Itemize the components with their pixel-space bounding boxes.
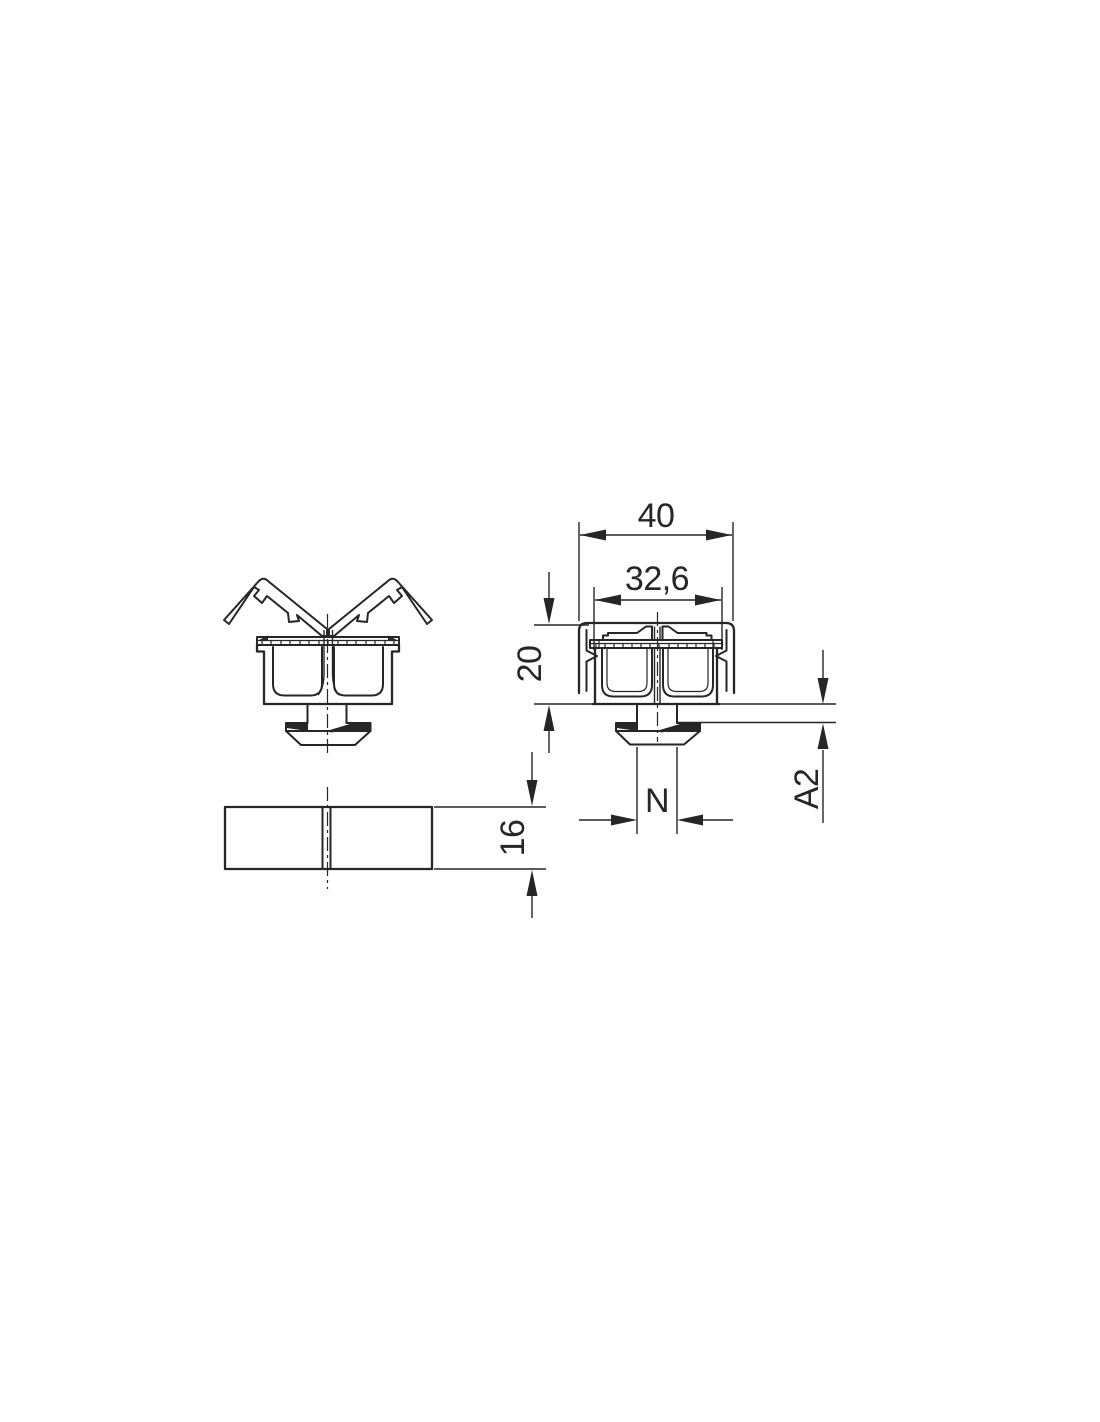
arrowhead-left (611, 815, 637, 826)
foot-taper (286, 731, 371, 745)
cavity-left (273, 647, 322, 696)
dimensions: 40 32,6 20 A2 (434, 497, 836, 918)
side-view (579, 612, 734, 745)
dim-inner-width-32-6: 32,6 (594, 560, 722, 650)
foot-wedge-left (287, 723, 309, 731)
dim-plate-thickness-16: 16 (434, 752, 546, 918)
dim-label-plate-thickness: 16 (494, 820, 532, 857)
dim-flange-height-a2: A2 (677, 650, 836, 823)
arrowhead-bottom (818, 724, 829, 750)
arrowhead-bottom (544, 705, 555, 731)
wing-base-right (663, 627, 712, 641)
dim-body-height-20: 20 (511, 572, 836, 753)
arrowhead-left (595, 595, 621, 606)
arrowhead-left (580, 530, 606, 541)
bottom-view (225, 787, 432, 889)
spring-wing-left (224, 579, 327, 636)
cavity-right (334, 647, 383, 696)
plate-split-lines (323, 807, 331, 869)
dim-label-body-height: 20 (511, 646, 549, 683)
wing-base-left (603, 627, 652, 641)
cavity-left-inner (607, 648, 647, 692)
technical-drawing-canvas: 40 32,6 20 A2 (0, 0, 1100, 1422)
dim-label-slot-width: N (645, 782, 669, 820)
arrowhead-right (677, 815, 703, 826)
arrowhead-top (544, 598, 555, 624)
dim-label-overall-width: 40 (638, 497, 675, 535)
arrowhead-top (527, 780, 538, 806)
dim-label-flange-height: A2 (788, 769, 826, 810)
plate-outline (225, 807, 432, 869)
t-nut-foot (286, 704, 371, 745)
front-view (224, 579, 432, 757)
arrowhead-bottom (527, 870, 538, 896)
dim-label-inner-width: 32,6 (625, 560, 689, 598)
spring-wing-right (329, 579, 432, 636)
arrowhead-right (695, 595, 721, 606)
dim-overall-width-40: 40 (579, 497, 733, 621)
dim-slot-width-n: N (579, 747, 733, 834)
cavity-right-inner (668, 648, 708, 692)
arrowhead-right (706, 530, 732, 541)
arrowhead-top (818, 678, 829, 704)
foot-wedge-left (617, 723, 639, 731)
technical-drawing-page: 40 32,6 20 A2 (0, 0, 1100, 1422)
